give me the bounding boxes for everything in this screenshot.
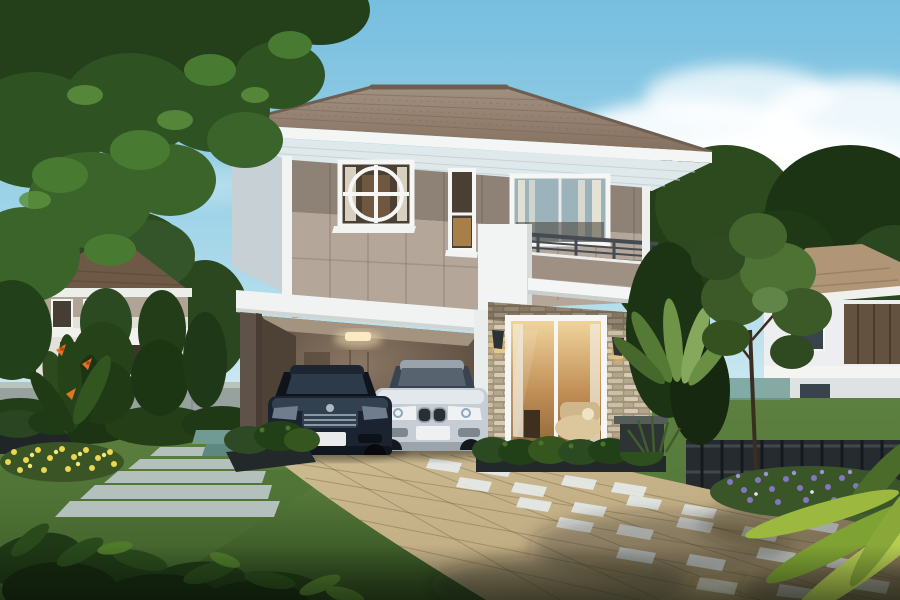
bottom-vignette: [0, 545, 900, 600]
balcony-corner-column: [478, 224, 532, 312]
scene-canvas: [0, 0, 900, 600]
circle-feature-window: [332, 162, 416, 233]
sliding-glass-door: [506, 318, 604, 450]
narrow-window: [445, 170, 478, 258]
yellow-flower-bed: [0, 442, 124, 482]
license-plate: [416, 426, 450, 440]
house-render-image: [0, 0, 900, 600]
